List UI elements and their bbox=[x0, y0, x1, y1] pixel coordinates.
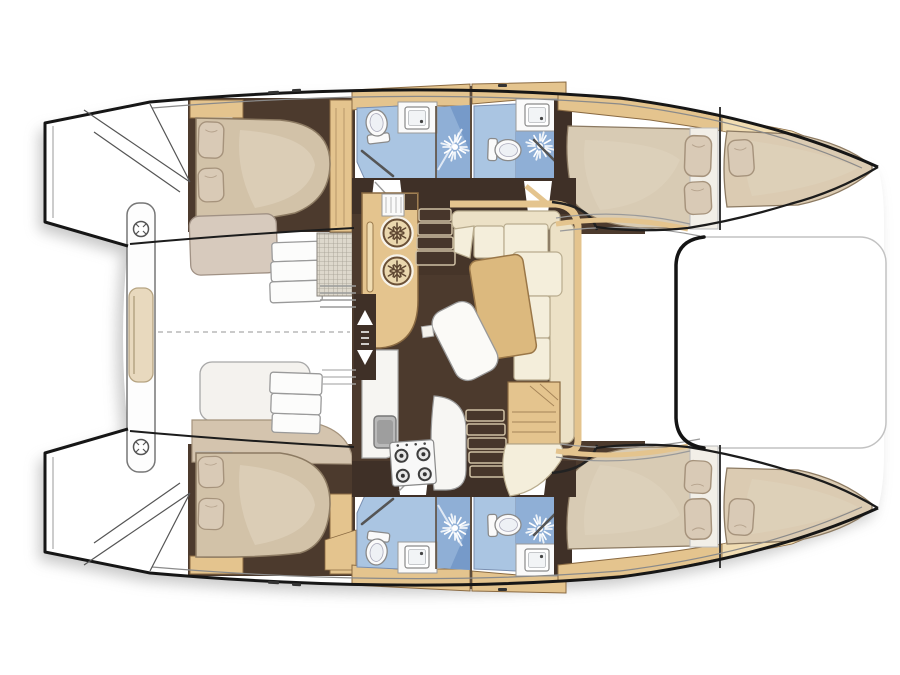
foredeck-platform bbox=[676, 237, 886, 448]
deck-hatch-icon bbox=[134, 440, 149, 455]
floor-plan-canvas bbox=[0, 0, 900, 675]
stairs-to-top-hull bbox=[416, 209, 455, 265]
catamaran-floor-plan bbox=[0, 0, 900, 675]
stairs-to-bottom-hull bbox=[466, 410, 507, 477]
entry-door-strip bbox=[354, 294, 376, 380]
bed-duvet bbox=[189, 213, 278, 275]
steps-bottom-hull bbox=[270, 372, 323, 434]
fridge-top bbox=[382, 218, 413, 249]
deck-hatch-icon bbox=[134, 222, 149, 237]
steps-top-hull bbox=[270, 241, 323, 303]
footstool bbox=[421, 325, 433, 337]
nav-cabinet bbox=[508, 382, 560, 444]
stove bbox=[390, 440, 437, 487]
wardrobe bbox=[330, 100, 352, 232]
bench-cushion bbox=[129, 288, 153, 382]
fridge-top bbox=[382, 256, 413, 287]
